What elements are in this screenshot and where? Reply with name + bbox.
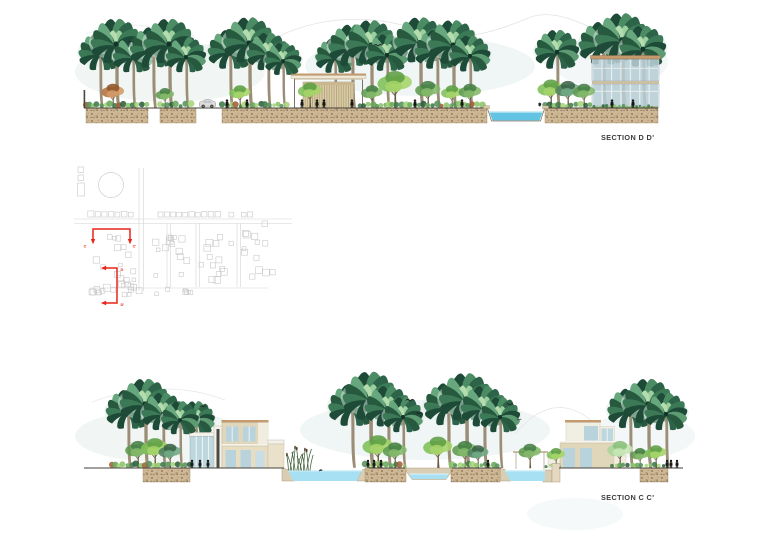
plan-building	[122, 292, 127, 297]
plan-building	[262, 241, 267, 246]
reed-head	[304, 448, 306, 452]
person-figure	[669, 460, 672, 468]
shrub	[383, 461, 389, 467]
plan-building	[179, 272, 183, 276]
soil-hatch	[640, 468, 668, 482]
end-post	[84, 90, 86, 108]
stair-slot	[217, 429, 220, 468]
plan-building	[217, 235, 222, 240]
shrub	[587, 102, 592, 107]
section-dd-drawing: SECTION D D'	[75, 12, 668, 142]
shrub	[120, 101, 126, 107]
shrub	[107, 101, 113, 107]
shrub	[593, 105, 596, 108]
roof-slab	[591, 56, 661, 60]
shrub	[232, 101, 238, 107]
plan-building	[163, 245, 169, 251]
shrub	[474, 463, 479, 468]
plan-building	[242, 247, 246, 251]
shrub	[394, 102, 399, 107]
shrub	[425, 103, 430, 108]
plan-building	[256, 267, 263, 274]
sections-canvas: SECTION D D' C C' D	[0, 0, 768, 543]
section-cc-label: SECTION C C'	[601, 493, 654, 502]
plan-building	[177, 212, 182, 217]
car	[199, 99, 215, 108]
plan-building	[244, 231, 251, 238]
shrub	[565, 104, 569, 108]
plan-building	[115, 212, 120, 217]
plan-building	[158, 212, 163, 217]
plan-building	[183, 212, 188, 217]
section-dd-label: SECTION D D'	[601, 133, 654, 142]
plan-building	[213, 241, 219, 247]
water-pool	[484, 103, 549, 121]
plan-building	[250, 274, 255, 279]
arrowhead-c	[91, 239, 95, 244]
soil-hatch	[451, 468, 500, 482]
shrub	[605, 104, 608, 107]
shrub	[125, 463, 130, 468]
shrub	[430, 103, 434, 107]
plan-building	[115, 245, 121, 251]
plan-building	[208, 211, 214, 217]
plan-building	[102, 212, 107, 217]
shrub	[645, 464, 648, 467]
person-figure	[675, 460, 678, 468]
shrub	[139, 102, 145, 108]
shrub	[545, 465, 548, 468]
shrub	[480, 463, 484, 467]
shrub	[622, 104, 625, 107]
soil-hatch	[222, 108, 487, 123]
shrub	[635, 105, 638, 108]
plan-roundabout	[99, 173, 124, 198]
plan-building	[107, 235, 112, 240]
pavilion-roof-slab	[291, 74, 366, 76]
shrub	[465, 103, 469, 107]
shrub	[160, 462, 165, 467]
plan-building	[171, 212, 176, 217]
soil-hatch	[160, 108, 196, 123]
plan-building	[153, 239, 159, 245]
shrub	[99, 103, 104, 108]
shrub	[630, 463, 635, 468]
plan-building	[254, 255, 259, 260]
plan-building	[248, 212, 253, 217]
plan-building	[108, 212, 113, 217]
shrub	[549, 464, 552, 467]
plan-building	[155, 292, 159, 296]
plan-building	[128, 212, 133, 217]
plan-building	[179, 236, 185, 242]
shrub	[172, 101, 179, 108]
shrub	[649, 464, 652, 467]
shrub	[602, 104, 605, 107]
water-channel-left	[288, 470, 362, 481]
shrub	[639, 463, 643, 467]
plan-building	[93, 257, 99, 263]
reed-head	[294, 446, 296, 450]
plan-building	[202, 212, 207, 217]
shrub	[146, 461, 152, 467]
shrub	[161, 103, 165, 107]
plan-building	[255, 240, 259, 244]
reed	[290, 451, 293, 471]
water-channel-right	[505, 470, 545, 481]
shrub	[219, 101, 225, 107]
shrub	[439, 104, 443, 108]
shrub	[618, 105, 620, 107]
plan-building	[95, 212, 100, 217]
plan-building	[242, 212, 247, 217]
shrub	[389, 463, 394, 468]
glass-building	[591, 56, 661, 109]
plan-building	[196, 212, 201, 217]
shrub	[639, 105, 641, 107]
reed-head	[306, 449, 308, 453]
plan-building	[210, 263, 215, 268]
shrub	[144, 102, 149, 107]
plan-building	[164, 212, 169, 217]
shrub	[569, 103, 574, 108]
shrub	[453, 463, 457, 467]
plan-building	[216, 257, 222, 263]
plan-building	[229, 212, 234, 217]
shrub	[662, 464, 665, 467]
shrub	[469, 101, 475, 107]
shrub	[652, 462, 657, 467]
section-cc-drawing: SECTION C C'	[75, 371, 695, 530]
key-plan: C C' D D'	[74, 167, 292, 307]
shrub	[625, 463, 629, 467]
shrub	[94, 101, 100, 107]
shrub	[272, 103, 276, 107]
shrub	[267, 103, 272, 108]
plan-building	[263, 269, 270, 276]
marker-d-label: D	[121, 267, 124, 272]
shrub	[120, 461, 126, 467]
marker-c-prime-label: C'	[133, 244, 137, 249]
plan-building	[132, 278, 136, 282]
plan-building	[206, 239, 213, 246]
arrowhead-c-prime	[128, 239, 132, 244]
roof-slab	[565, 420, 601, 423]
shrub	[366, 102, 371, 107]
shrub	[444, 102, 450, 108]
plan-building	[184, 258, 190, 264]
reed	[310, 455, 313, 471]
shrub	[133, 461, 139, 467]
shrub	[407, 102, 412, 107]
shrub	[179, 104, 183, 108]
shrub	[555, 102, 561, 108]
shrub	[474, 101, 480, 107]
marker-d-prime-label: D'	[121, 302, 125, 307]
shrub	[284, 102, 290, 108]
drawing-sheet: SECTION D D' C C' D	[0, 0, 768, 543]
shrub	[560, 103, 565, 108]
glass-facade-lower	[592, 84, 659, 108]
plan-building	[127, 293, 131, 297]
soil-hatch	[365, 468, 406, 482]
shrub	[134, 102, 139, 107]
shrub	[379, 103, 384, 108]
shrub	[610, 464, 614, 468]
water-spout	[539, 103, 542, 107]
reed	[287, 456, 289, 471]
plan-building	[221, 269, 228, 276]
shrub	[279, 104, 283, 108]
plan-building	[229, 241, 233, 245]
plan-building	[270, 270, 275, 275]
shrub	[647, 104, 650, 107]
soil-hatch	[143, 468, 190, 482]
soil-hatch	[545, 108, 658, 123]
shrub	[255, 103, 259, 107]
glass-facade-upper	[592, 59, 659, 81]
plan-building	[251, 233, 257, 239]
plan-building	[88, 211, 94, 217]
shrub	[495, 463, 500, 468]
marker-c-label: C	[84, 244, 87, 249]
reed-head	[296, 447, 298, 451]
shrub	[621, 463, 625, 467]
soil-hatch	[86, 108, 148, 123]
plan-building	[154, 274, 158, 278]
plan-building	[215, 212, 221, 218]
shrub	[583, 103, 588, 108]
plan-building	[121, 211, 127, 217]
shrub	[657, 464, 661, 468]
plan-building	[183, 288, 187, 292]
plan-building	[126, 252, 132, 258]
plan-building	[131, 269, 136, 274]
shrub	[626, 105, 628, 107]
shrub	[597, 105, 599, 107]
plan-building	[204, 245, 211, 252]
plan-building	[207, 254, 212, 259]
arrowhead-d-prime	[101, 301, 106, 305]
plan-building	[121, 245, 126, 250]
shrub	[462, 463, 466, 467]
roof-slab	[222, 420, 269, 423]
shrub	[170, 462, 175, 467]
shrub	[396, 461, 402, 467]
shrub	[188, 100, 195, 107]
plan-building	[189, 212, 194, 217]
shrub	[578, 101, 584, 107]
shrub	[165, 462, 171, 468]
plan-building	[156, 248, 160, 252]
shrub	[182, 101, 188, 107]
section-line-d	[105, 268, 117, 303]
